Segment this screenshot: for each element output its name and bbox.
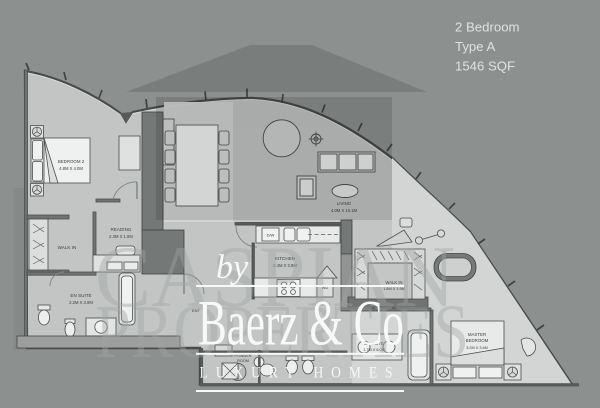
svg-text:WALK IN: WALK IN bbox=[58, 245, 77, 250]
svg-text:3.2M X 3.6M: 3.2M X 3.6M bbox=[466, 346, 488, 350]
svg-text:LUXURY HOMES: LUXURY HOMES bbox=[200, 365, 401, 382]
svg-text:Type A: Type A bbox=[455, 39, 496, 54]
svg-text:EN SUITE: EN SUITE bbox=[70, 293, 91, 298]
svg-text:1546 SQF: 1546 SQF bbox=[455, 59, 515, 74]
svg-text:by: by bbox=[216, 249, 249, 286]
svg-text:4.8M X 4.0M: 4.8M X 4.0M bbox=[59, 166, 83, 171]
svg-text:2.2M X 3.9M: 2.2M X 3.9M bbox=[69, 300, 93, 305]
svg-text:MASTER: MASTER bbox=[468, 332, 486, 337]
svg-text:BEDROOM 2: BEDROOM 2 bbox=[58, 159, 85, 164]
svg-text:BEDROOM: BEDROOM bbox=[466, 338, 489, 343]
svg-text:2 Bedroom: 2 Bedroom bbox=[455, 20, 520, 35]
svg-text:Baerz & Co: Baerz & Co bbox=[198, 288, 404, 360]
